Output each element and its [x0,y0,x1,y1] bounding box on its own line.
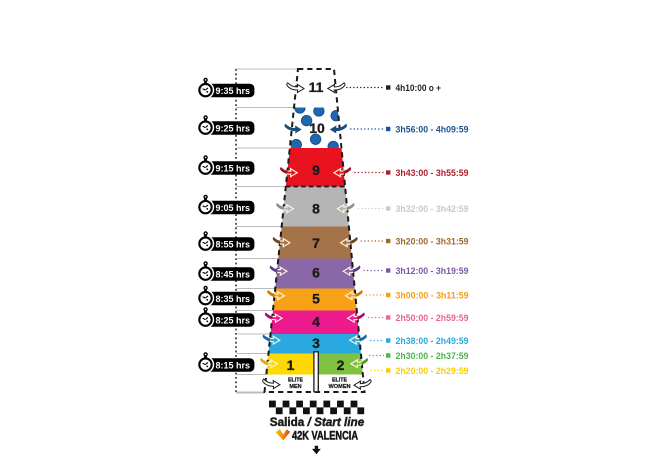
svg-text:2h20:00 - 2h29:59: 2h20:00 - 2h29:59 [396,366,469,376]
svg-text:9:05 hrs: 9:05 hrs [216,202,251,213]
svg-text:42K VALENCIA: 42K VALENCIA [292,431,358,443]
svg-text:2: 2 [337,357,345,373]
svg-text:8: 8 [312,201,320,217]
svg-text:8:15 hrs: 8:15 hrs [216,360,251,371]
svg-text:8:55 hrs: 8:55 hrs [216,239,251,250]
svg-text:2h38:00 - 2h49:59: 2h38:00 - 2h49:59 [396,336,469,346]
svg-text:MEN: MEN [289,384,301,390]
svg-text:3: 3 [312,335,320,351]
svg-text:2h30:00 - 2h37:59: 2h30:00 - 2h37:59 [396,351,469,361]
svg-text:Salida / Start line: Salida / Start line [270,415,365,429]
svg-text:3h32:00 - 3h42:59: 3h32:00 - 3h42:59 [396,204,469,214]
svg-text:9:15 hrs: 9:15 hrs [216,163,251,174]
svg-text:4h10:00 o +: 4h10:00 o + [396,83,442,93]
svg-text:6: 6 [312,265,320,281]
svg-text:3h20:00 - 3h31:59: 3h20:00 - 3h31:59 [396,236,469,246]
svg-text:ELITE: ELITE [288,378,303,384]
svg-text:4: 4 [312,314,320,330]
svg-text:3h12:00 - 3h19:59: 3h12:00 - 3h19:59 [396,266,469,276]
svg-text:WOMEN: WOMEN [329,384,351,390]
svg-text:3h00:00 - 3h11:59: 3h00:00 - 3h11:59 [396,290,469,300]
svg-text:9:35 hrs: 9:35 hrs [216,85,251,96]
svg-text:3h56:00 - 4h09:59: 3h56:00 - 4h09:59 [396,124,469,134]
svg-text:3h43:00 - 3h55:59: 3h43:00 - 3h55:59 [396,168,469,178]
svg-text:9:25 hrs: 9:25 hrs [216,123,251,134]
svg-text:1: 1 [287,357,295,373]
svg-text:7: 7 [312,235,320,251]
svg-text:8:45 hrs: 8:45 hrs [216,269,251,280]
svg-text:8:25 hrs: 8:25 hrs [216,315,251,326]
svg-text:11: 11 [309,79,324,95]
svg-text:10: 10 [309,120,325,136]
svg-text:8:35 hrs: 8:35 hrs [216,293,251,304]
svg-text:ELITE: ELITE [332,378,347,384]
svg-text:2h50:00 - 2h59:59: 2h50:00 - 2h59:59 [396,313,469,323]
svg-text:5: 5 [312,291,320,307]
svg-text:9: 9 [312,162,320,178]
